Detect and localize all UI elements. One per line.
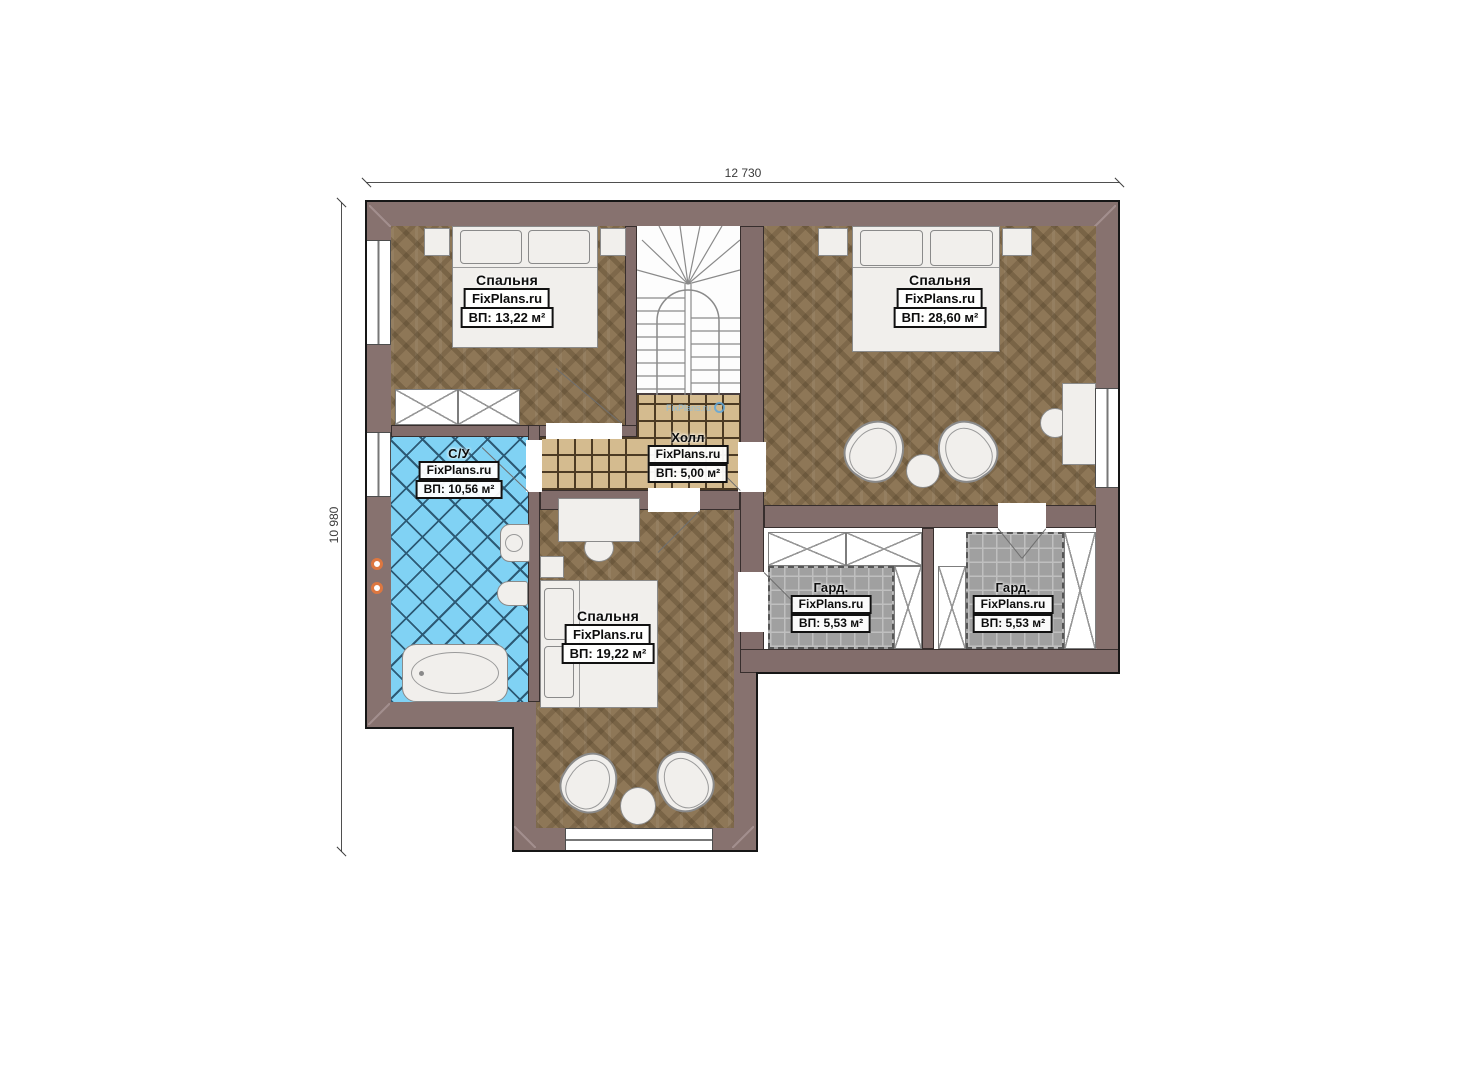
wall-corner-hatch xyxy=(1094,205,1116,227)
outline xyxy=(756,672,1120,674)
wall-segment xyxy=(922,528,934,649)
bathtub xyxy=(402,644,508,702)
wardrobe1-label: Гард. FixPlans.ru ВП: 5,53 м² xyxy=(791,580,872,633)
towel-radiator xyxy=(371,582,383,594)
nightstand xyxy=(424,228,450,256)
bathroom-label: С/У FixPlans.ru ВП: 10,56 м² xyxy=(416,446,503,499)
site-label: FixPlans.ru xyxy=(897,288,983,309)
wall-segment xyxy=(740,649,1120,673)
area-label: ВП: 28,60 м² xyxy=(894,307,987,328)
wall-corner-hatch xyxy=(369,205,391,227)
outline xyxy=(365,200,367,729)
bedroom3-door xyxy=(648,488,700,512)
area-label: ВП: 5,53 м² xyxy=(791,614,871,633)
area-label: ВП: 5,00 м² xyxy=(648,464,728,483)
room-name: С/У xyxy=(416,446,503,461)
pillow xyxy=(930,230,993,266)
outline xyxy=(1118,200,1120,674)
room-name: Холл xyxy=(648,430,729,445)
area-label: ВП: 19,22 м² xyxy=(562,643,655,664)
nightstand xyxy=(1002,228,1032,256)
bedroom1-door xyxy=(546,423,622,439)
bedroom1-window xyxy=(366,240,391,345)
site-label: FixPlans.ru xyxy=(419,461,500,480)
bedroom3-label: Спальня FixPlans.ru ВП: 19,22 м² xyxy=(562,608,655,664)
outline xyxy=(512,727,514,852)
bathroom-door xyxy=(526,440,542,492)
dimension-line-top xyxy=(366,182,1120,183)
outline xyxy=(756,672,758,852)
site-label: FixPlans.ru xyxy=(973,595,1054,614)
area-label: ВП: 5,53 м² xyxy=(973,614,1053,633)
dimension-line-left xyxy=(341,202,342,852)
towel-radiator xyxy=(371,558,383,570)
bathtub-drain xyxy=(419,671,424,676)
dimension-label-left: 10 980 xyxy=(327,503,341,548)
wardrobe2-label: Гард. FixPlans.ru ВП: 5,53 м² xyxy=(973,580,1054,633)
site-label: FixPlans.ru xyxy=(791,595,872,614)
pillow xyxy=(460,230,522,264)
outline xyxy=(366,727,514,729)
site-label: FixPlans.ru xyxy=(648,445,729,464)
toilet xyxy=(497,581,528,606)
room-name: Гард. xyxy=(791,580,872,595)
dimension-label-top: 12 730 xyxy=(721,166,766,180)
bathtub-basin xyxy=(411,652,499,694)
pillow xyxy=(860,230,923,266)
nightstand xyxy=(818,228,848,256)
staircase xyxy=(637,226,740,395)
wall-segment xyxy=(625,226,637,437)
wall-corner-hatch xyxy=(368,703,390,725)
side-table xyxy=(906,454,940,488)
bedroom2-label: Спальня FixPlans.ru ВП: 28,60 м² xyxy=(894,272,987,328)
area-label: ВП: 10,56 м² xyxy=(416,480,503,499)
wall-segment xyxy=(764,505,1096,528)
bedroom3-window xyxy=(565,828,713,852)
site-label: FixPlans.ru xyxy=(565,624,651,645)
side-table xyxy=(620,787,656,825)
wardrobe1-closet xyxy=(768,532,846,566)
floor-plan: Спальня FixPlans.ru ВП: 13,22 м² Спальня… xyxy=(0,0,1473,1080)
wardrobe1-closet xyxy=(846,532,922,566)
bedroom2-door xyxy=(738,442,766,492)
site-watermark: FixPlans.ru xyxy=(666,402,725,413)
wardrobe2-closet xyxy=(1064,532,1096,649)
site-label: FixPlans.ru xyxy=(464,288,550,309)
wall-corner-hatch xyxy=(514,826,536,848)
nightstand xyxy=(600,228,626,256)
sink xyxy=(500,524,530,562)
wardrobe2-door xyxy=(998,503,1046,528)
wardrobe1-door xyxy=(738,572,766,632)
bedroom1-label: Спальня FixPlans.ru ВП: 13,22 м² xyxy=(461,272,554,328)
site-watermark-text: FixPlans.ru xyxy=(666,403,711,413)
bedroom2-window xyxy=(1095,388,1120,488)
wardrobe1-closet xyxy=(894,566,922,649)
pillow xyxy=(528,230,590,264)
room-name: Спальня xyxy=(562,608,655,624)
room-name: Гард. xyxy=(973,580,1054,595)
hall-floor-left xyxy=(540,437,640,490)
bedroom2-desk xyxy=(1062,383,1096,465)
bathroom-window xyxy=(366,432,391,497)
wall-corner-hatch xyxy=(732,826,754,848)
site-watermark-logo-icon xyxy=(714,402,725,413)
sink-basin xyxy=(505,534,523,552)
staircase-drawing xyxy=(637,226,740,395)
nightstand xyxy=(540,556,564,578)
room-name: Спальня xyxy=(894,272,987,288)
area-label: ВП: 13,22 м² xyxy=(461,307,554,328)
bedroom3-desk xyxy=(558,498,640,542)
hall-label: Холл FixPlans.ru ВП: 5,00 м² xyxy=(648,430,729,483)
bedroom1-closet xyxy=(395,389,458,425)
wardrobe2-closet xyxy=(938,566,966,649)
room-name: Спальня xyxy=(461,272,554,288)
bedroom1-closet xyxy=(458,389,520,425)
outline xyxy=(512,850,758,852)
outline xyxy=(366,200,1120,202)
